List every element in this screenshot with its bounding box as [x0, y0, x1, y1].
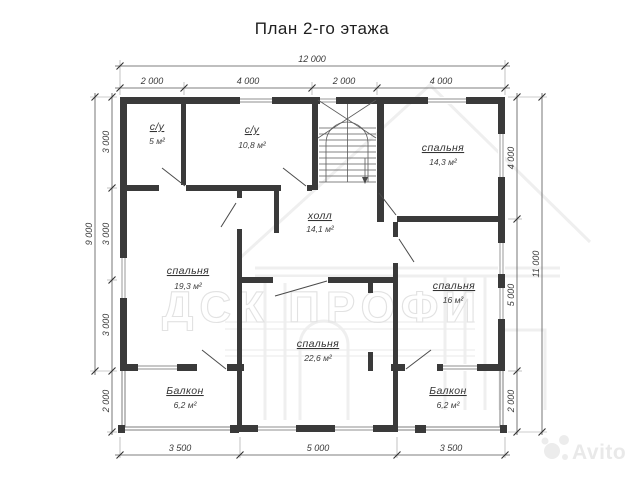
dim-right-1: 4 000 — [506, 147, 516, 170]
dim-bottom-3: 3 500 — [440, 443, 463, 453]
dim-right-2: 5 000 — [506, 284, 516, 307]
dim-top-3: 2 000 — [332, 76, 356, 86]
window — [258, 425, 296, 432]
room-area-wc2: 10,8 м² — [238, 140, 267, 150]
dim-bottom-2: 5 000 — [307, 443, 330, 453]
room-area-bedroom2: 19,3 м² — [174, 281, 203, 291]
floor-plan-page: ДСК ПРОФИ План 2-го этажа — [0, 0, 640, 480]
room-label-wc1: с/у — [150, 121, 165, 133]
window — [335, 425, 373, 432]
avito-wordmark: Avito — [572, 441, 626, 464]
avito-logo-watermark: Avito — [542, 435, 627, 464]
room-area-bedroom4: 22,6 м² — [303, 353, 333, 363]
room-label-bedroom1: спальня — [422, 142, 464, 154]
window — [428, 97, 466, 104]
room-area-bedroom1: 14,3 м² — [429, 157, 458, 167]
window — [498, 288, 505, 319]
avito-dot-icon — [544, 443, 560, 459]
dim-right-3: 2 000 — [506, 390, 516, 414]
dim-left-total: 9 000 — [84, 223, 94, 246]
floor-plan-canvas: ДСК ПРОФИ План 2-го этажа — [0, 0, 640, 480]
dim-right-total: 11 000 — [531, 251, 541, 278]
dim-top-2: 4 000 — [237, 76, 260, 86]
dim-top-1: 2 000 — [140, 76, 164, 86]
room-area-bedroom3: 16 м² — [443, 295, 465, 305]
window — [498, 243, 505, 274]
dim-top-total: 12 000 — [298, 54, 326, 64]
room-area-wc1: 5 м² — [149, 136, 166, 146]
dim-top-4: 4 000 — [430, 76, 453, 86]
window — [240, 97, 272, 104]
room-label-balcony1: Балкон — [166, 385, 203, 397]
dimensions-left: 9 000 3 000 3 000 3 000 2 000 — [84, 93, 117, 436]
room-label-bedroom2: спальня — [167, 265, 209, 277]
avito-dot-icon — [559, 435, 569, 445]
room-label-bedroom4: спальня — [297, 338, 339, 350]
dim-bottom-1: 3 500 — [169, 443, 192, 453]
dim-left-4: 2 000 — [101, 390, 111, 414]
dim-left-2: 3 000 — [101, 223, 111, 246]
window — [443, 364, 477, 371]
dim-left-3: 3 000 — [101, 314, 111, 337]
avito-dot-icon — [542, 438, 549, 445]
room-area-balcony2: 6,2 м² — [437, 400, 461, 410]
dim-left-1: 3 000 — [101, 131, 111, 154]
stair-direction-arrow — [362, 177, 368, 184]
room-label-bedroom3: спальня — [433, 280, 475, 292]
room-area-balcony1: 6,2 м² — [174, 400, 198, 410]
window — [120, 258, 127, 298]
room-label-hall: холл — [307, 210, 332, 222]
window — [498, 134, 505, 177]
window — [138, 364, 177, 371]
room-label-balcony2: Балкон — [429, 385, 466, 397]
room-label-wc2: с/у — [245, 124, 260, 136]
avito-dot-icon — [562, 454, 568, 460]
dimensions-right: 4 000 5 000 2 000 11 000 — [506, 93, 547, 436]
room-area-hall: 14,1 м² — [306, 224, 335, 234]
plan-title: План 2-го этажа — [255, 19, 390, 38]
dimensions-bottom: 3 500 5 000 3 500 — [115, 437, 510, 459]
dimensions-top: 12 000 2 000 4 000 2 000 4 000 — [115, 54, 510, 95]
